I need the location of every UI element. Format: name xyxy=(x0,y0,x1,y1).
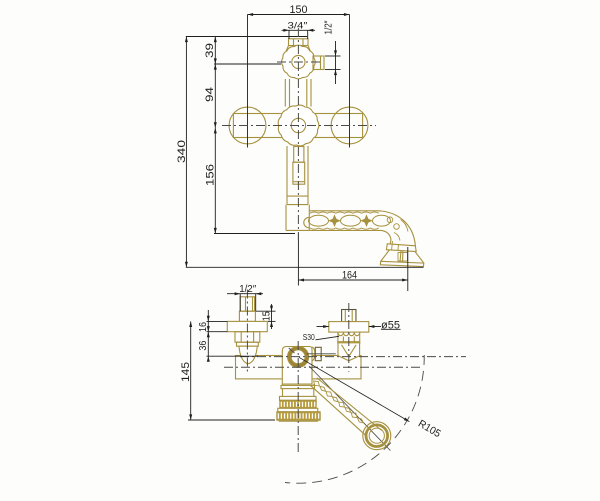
svg-text:164: 164 xyxy=(342,269,357,281)
svg-text:39: 39 xyxy=(204,43,216,58)
svg-text:1/2″: 1/2″ xyxy=(324,20,335,34)
svg-text:R105: R105 xyxy=(416,418,443,441)
svg-text:94: 94 xyxy=(204,87,216,102)
svg-text:3/4″: 3/4″ xyxy=(288,20,309,31)
svg-text:156: 156 xyxy=(204,164,216,186)
svg-text:1/2″: 1/2″ xyxy=(239,284,256,295)
svg-text:15: 15 xyxy=(262,311,273,321)
svg-text:36: 36 xyxy=(198,340,209,350)
svg-text:S30: S30 xyxy=(303,333,315,342)
